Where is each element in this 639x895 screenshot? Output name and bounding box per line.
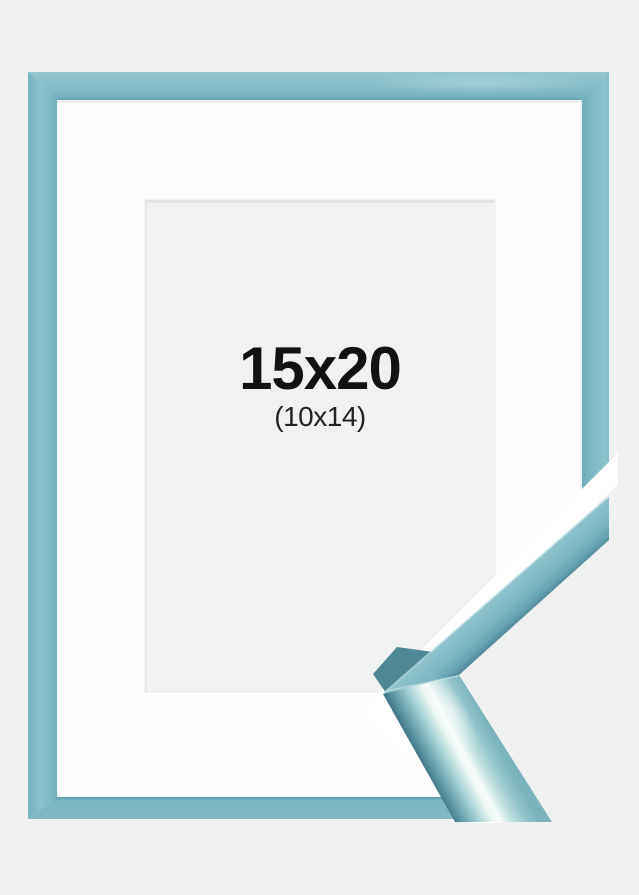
product-image: 15x20 (10x14) [0, 0, 639, 895]
frame-bar-left [28, 72, 57, 819]
frame-top-sheen [370, 72, 590, 94]
size-label: 15x20 [239, 335, 401, 402]
mat-opening [145, 200, 495, 692]
inner-size-label: (10x14) [274, 401, 365, 432]
frame-photo-svg: 15x20 (10x14) [0, 0, 639, 895]
